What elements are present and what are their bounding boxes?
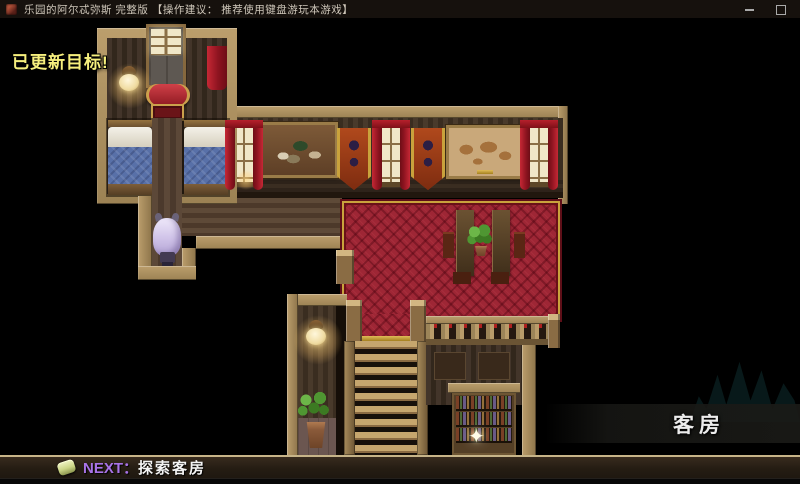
red-curtain bbox=[548, 124, 558, 190]
character-feet bbox=[162, 262, 173, 266]
minimize-button[interactable] bbox=[736, 3, 762, 16]
character-hair bbox=[153, 218, 181, 256]
carpet-landing bbox=[362, 314, 410, 336]
wall-panel bbox=[478, 352, 510, 380]
bed-footboard bbox=[108, 184, 152, 195]
sparkle-icon[interactable]: ✦ bbox=[468, 424, 485, 449]
dining-chair-right bbox=[514, 232, 525, 258]
hallway-top-wall bbox=[218, 106, 568, 118]
game-window: 乐园的阿尔忒弥斯 完整版 【操作建议： 推荐使用键盘游玩本游戏】 bbox=[0, 0, 800, 484]
red-curtain bbox=[207, 46, 227, 90]
quest-next-label: NEXT： bbox=[83, 457, 138, 478]
game-viewport[interactable]: ✦ 已更新目标! 客房 bbox=[0, 18, 800, 455]
dining-chair-bottom-right bbox=[491, 272, 509, 284]
red-curtain bbox=[253, 124, 263, 190]
maximize-button[interactable] bbox=[768, 3, 794, 16]
bed-pillow bbox=[108, 127, 152, 147]
bed-headboard bbox=[184, 120, 228, 127]
dining-table-right bbox=[492, 210, 510, 276]
curtain-valance bbox=[372, 120, 410, 128]
location-banner: 客房 bbox=[545, 404, 800, 443]
location-name: 客房 bbox=[545, 409, 725, 439]
bookshelf-top bbox=[448, 383, 520, 393]
bed-footboard bbox=[184, 184, 228, 195]
objective-toast: 已更新目标! bbox=[12, 48, 109, 73]
window-title: 乐园的阿尔忒弥斯 完整版 【操作建议： 推荐使用键盘游玩本游戏】 bbox=[24, 2, 353, 17]
painting-hunting-scene bbox=[263, 125, 335, 175]
window-pane bbox=[234, 128, 254, 182]
lamp-globe bbox=[119, 74, 139, 91]
painting-world-map bbox=[449, 128, 521, 176]
wall-panel bbox=[434, 352, 466, 380]
wall-lamp bbox=[306, 320, 326, 348]
bed-pillow bbox=[184, 127, 228, 147]
quest-bar: NEXT： 探索客房 bbox=[0, 455, 800, 478]
window-pane bbox=[381, 128, 401, 182]
balustrade-accents bbox=[426, 324, 558, 328]
red-curtain bbox=[225, 124, 235, 190]
red-curtain bbox=[372, 124, 382, 190]
stair-post-left bbox=[346, 300, 362, 342]
staircase bbox=[355, 341, 417, 455]
lower-left-wall-border bbox=[287, 294, 298, 455]
minimize-icon bbox=[745, 9, 754, 11]
red-bench bbox=[146, 84, 190, 106]
lower-room-right-wall bbox=[522, 345, 536, 455]
window-bottom-edge bbox=[0, 478, 800, 484]
curtain-valance bbox=[520, 120, 558, 128]
player-character bbox=[152, 212, 182, 266]
bed-right bbox=[184, 120, 228, 195]
hallway-floor-edge bbox=[196, 236, 342, 249]
wall-lamp bbox=[119, 66, 139, 94]
hall-window-mid bbox=[372, 120, 410, 196]
dining-chair-left bbox=[443, 232, 454, 258]
bed-blanket bbox=[184, 147, 228, 184]
bed-left bbox=[108, 120, 152, 195]
scroll-icon bbox=[56, 459, 76, 477]
stair-post-right bbox=[410, 300, 426, 342]
book-row bbox=[456, 396, 512, 409]
wood-pillar bbox=[336, 250, 354, 284]
quest-task: 探索客房 bbox=[138, 457, 206, 478]
window-pane bbox=[529, 128, 549, 182]
red-carpet bbox=[340, 199, 562, 322]
bed-blanket bbox=[108, 147, 152, 184]
hall-window-right bbox=[520, 120, 558, 196]
bed-headboard bbox=[108, 120, 152, 127]
app-icon bbox=[6, 4, 17, 15]
lamp-globe bbox=[306, 328, 326, 345]
window-pane bbox=[151, 29, 181, 55]
balustrade-end-post bbox=[548, 314, 560, 348]
balustrade-top-rail bbox=[426, 316, 558, 324]
curtain-valance bbox=[225, 120, 263, 128]
title-bar[interactable]: 乐园的阿尔忒弥斯 完整版 【操作建议： 推荐使用键盘游玩本游戏】 bbox=[0, 0, 800, 18]
dining-chair-bottom-left bbox=[453, 272, 471, 284]
maximize-icon bbox=[776, 5, 786, 15]
red-curtain bbox=[400, 124, 410, 190]
hall-window-left bbox=[225, 120, 263, 196]
map-plaque bbox=[477, 170, 493, 174]
potted-plant-leaves bbox=[294, 386, 334, 426]
corridor-bottom-wall bbox=[138, 266, 196, 280]
stair-rail-left bbox=[344, 341, 355, 455]
red-curtain bbox=[520, 124, 530, 190]
table-plant bbox=[466, 222, 494, 250]
